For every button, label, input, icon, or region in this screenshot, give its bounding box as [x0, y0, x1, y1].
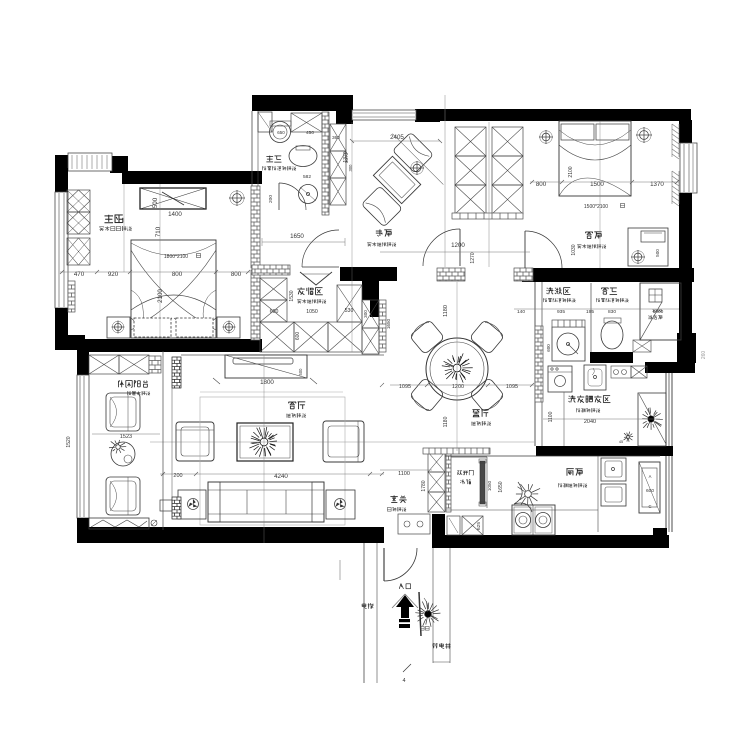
svg-text:1100: 1100 [548, 411, 554, 422]
svg-text:500: 500 [152, 197, 159, 208]
svg-text:582: 582 [303, 174, 311, 180]
svg-text:1370: 1370 [343, 151, 349, 162]
svg-text:1650: 1650 [386, 318, 391, 329]
svg-text:1200: 1200 [451, 242, 465, 249]
svg-text:200: 200 [268, 195, 274, 203]
svg-text:1780: 1780 [421, 480, 427, 491]
svg-text:1650: 1650 [498, 481, 504, 492]
svg-text:450: 450 [306, 130, 314, 136]
svg-text:1180: 1180 [443, 416, 449, 427]
svg-text:260: 260 [701, 351, 707, 360]
svg-text:2040: 2040 [584, 419, 596, 425]
svg-text:1270: 1270 [470, 252, 476, 263]
svg-text:1650: 1650 [290, 233, 304, 240]
svg-text:140: 140 [517, 309, 525, 315]
svg-text:650: 650 [277, 130, 285, 135]
svg-text:4: 4 [402, 678, 405, 684]
svg-text:935: 935 [557, 309, 565, 315]
svg-text:600: 600 [546, 344, 551, 352]
svg-text:1000: 1000 [653, 309, 664, 315]
svg-text:1800: 1800 [260, 379, 274, 386]
svg-text:1530: 1530 [289, 290, 295, 301]
svg-text:500: 500 [298, 368, 303, 376]
svg-text:500: 500 [655, 249, 660, 257]
svg-text:1400: 1400 [168, 211, 182, 218]
svg-text:1030: 1030 [571, 244, 577, 255]
svg-text:710: 710 [155, 226, 162, 237]
svg-text:300: 300 [348, 164, 353, 172]
svg-text:2100: 2100 [568, 166, 574, 177]
svg-text:830: 830 [608, 309, 616, 315]
svg-text:300: 300 [363, 310, 368, 318]
svg-text:1523: 1523 [120, 434, 132, 440]
svg-text:600: 600 [270, 309, 279, 315]
svg-text:1500*2100: 1500*2100 [584, 204, 608, 210]
svg-text:2405: 2405 [390, 134, 404, 141]
svg-text:1800*2100: 1800*2100 [164, 254, 188, 260]
svg-text:625: 625 [476, 522, 482, 530]
svg-text:1050: 1050 [306, 309, 318, 315]
svg-text:600: 600 [295, 332, 301, 341]
svg-text:2100: 2100 [157, 289, 164, 303]
svg-text:195: 195 [586, 309, 594, 315]
svg-text:A: A [649, 474, 652, 479]
svg-text:1050: 1050 [487, 480, 492, 491]
svg-text:1180: 1180 [443, 305, 449, 317]
svg-text:45: 45 [619, 440, 623, 444]
svg-text:600: 600 [646, 488, 654, 494]
svg-text:C: C [648, 504, 651, 509]
svg-text:1520: 1520 [66, 436, 72, 447]
svg-text:1100: 1100 [398, 471, 410, 477]
